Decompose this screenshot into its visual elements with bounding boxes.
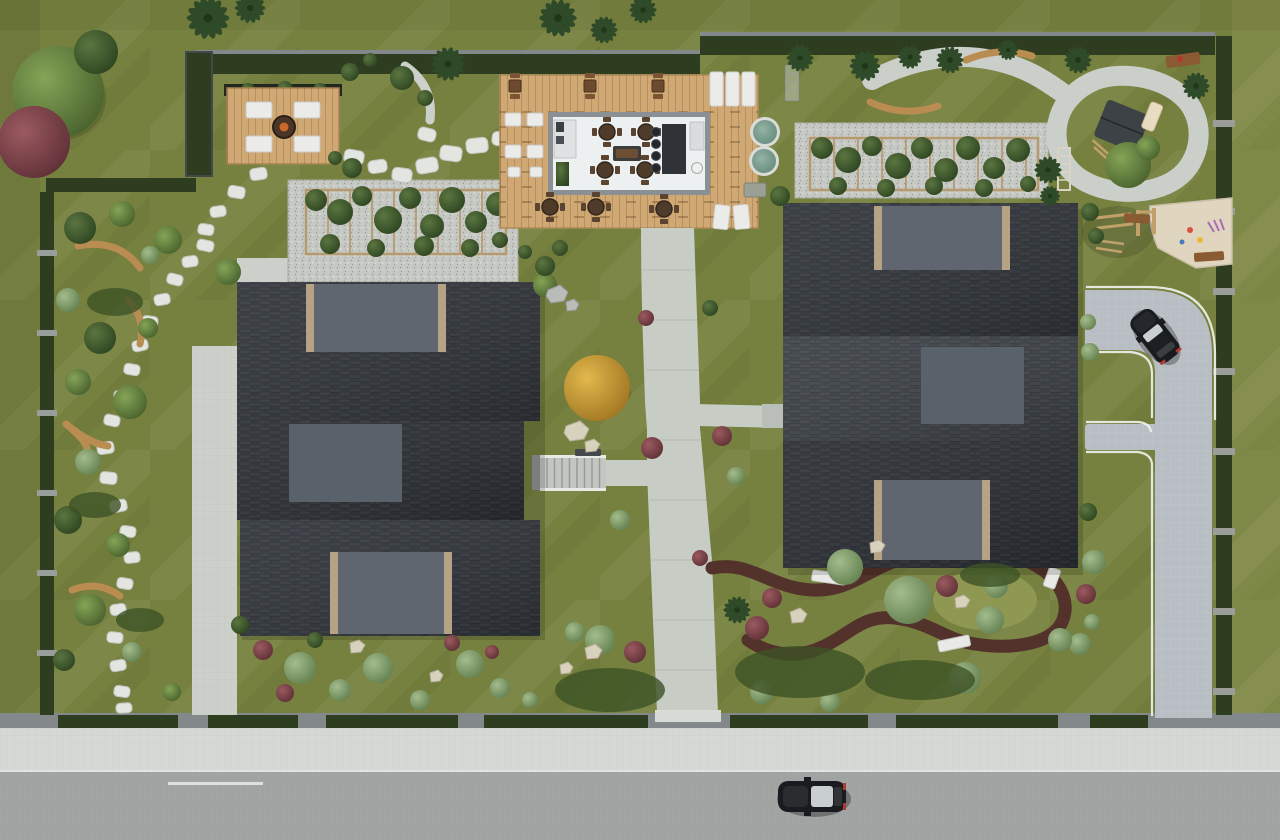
west-building-cluster	[237, 282, 545, 640]
panel-trim	[982, 480, 990, 560]
sink	[556, 136, 564, 144]
stove	[556, 122, 564, 132]
walkway-west-branch	[606, 460, 650, 486]
playground-tree	[1136, 136, 1160, 160]
hedge-left	[40, 192, 54, 715]
deck-dining-set	[509, 73, 521, 99]
basin	[692, 163, 703, 174]
spa-pool	[753, 120, 777, 144]
firepit-deck	[224, 81, 342, 164]
skylight-panel-1	[882, 206, 1002, 270]
indoor-plant	[556, 162, 569, 186]
mirror	[804, 777, 811, 781]
panel-trim	[1002, 206, 1010, 270]
site-plan-render	[0, 0, 1280, 840]
panel-trim	[444, 552, 452, 634]
panel-trim	[874, 206, 882, 270]
panel-trim	[306, 284, 314, 352]
stair-edge-strip	[540, 488, 606, 491]
skylight-panel-3	[338, 552, 444, 634]
skylight-panel-2	[289, 424, 402, 502]
street-hedge-row	[58, 715, 1148, 728]
taillight	[843, 803, 846, 810]
west-apron-texture	[192, 346, 237, 715]
mirror	[804, 812, 811, 816]
entry-pad-east	[762, 404, 783, 428]
panel-trim	[330, 552, 338, 634]
golden-autumn-tree	[564, 355, 630, 421]
outdoor-shower-frame	[786, 66, 798, 100]
bar-counter	[662, 124, 686, 174]
deck-dining-set	[652, 73, 664, 99]
fridge	[690, 122, 704, 150]
outside-grass-right	[1232, 0, 1280, 715]
center-fire-table-top	[616, 149, 638, 158]
car-glass	[811, 786, 833, 807]
skylight-panel-1	[314, 284, 438, 352]
stair-flight	[540, 458, 606, 488]
east-building-cluster	[783, 203, 1083, 575]
sidewalk-pavers	[0, 728, 1280, 772]
top-wall-east	[700, 32, 1215, 36]
clubhouse-pavilion	[500, 72, 766, 230]
planter-border-topleft	[186, 52, 212, 176]
road-marking	[168, 782, 263, 785]
spa-pool	[752, 149, 776, 173]
sun-loungers-north	[710, 72, 755, 106]
car-hood	[783, 786, 808, 807]
taillight	[843, 783, 846, 790]
driveway-spur-pavers	[1085, 424, 1157, 450]
street-car	[777, 777, 851, 817]
skylight-panel-3	[882, 480, 982, 560]
walkway-step	[655, 710, 721, 722]
garden-bench	[744, 183, 766, 197]
panel-trim	[438, 284, 446, 352]
fire-pit-flame	[280, 123, 289, 132]
skylight-panel-2	[921, 347, 1024, 424]
curb-line	[0, 770, 1280, 772]
street-band	[0, 713, 1280, 840]
car-trunk	[834, 787, 842, 806]
deck-dining-set	[584, 73, 596, 99]
fitness-bench	[1124, 213, 1151, 224]
hedge-connector-left	[46, 178, 196, 192]
bench-cushion	[1177, 56, 1183, 62]
